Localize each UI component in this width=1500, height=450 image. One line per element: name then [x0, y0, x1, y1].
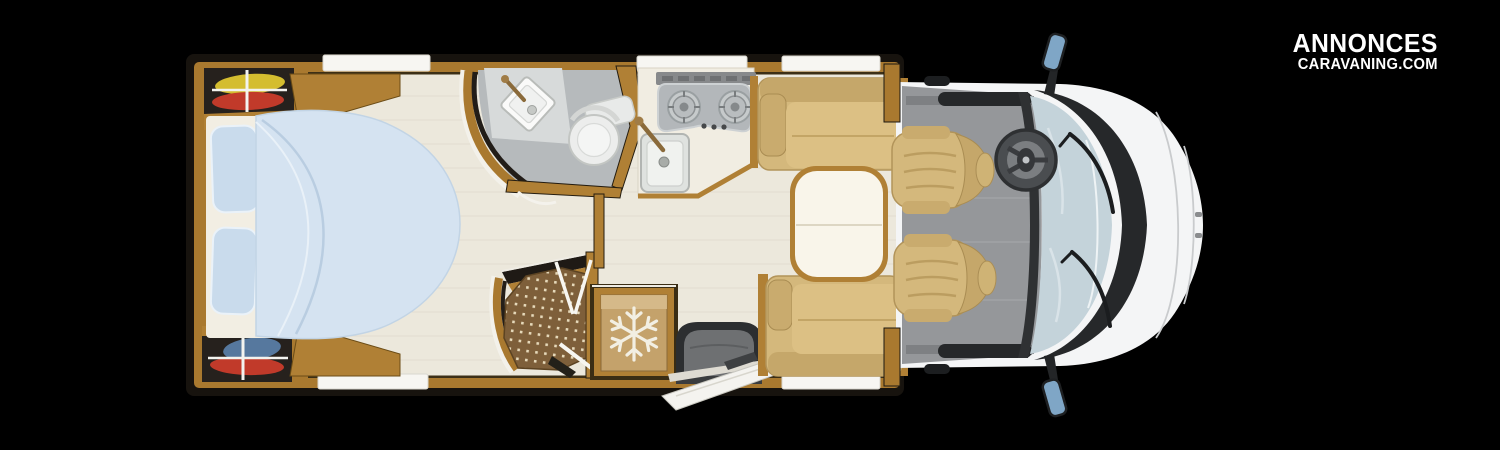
cab-door-sill-top	[938, 92, 1032, 106]
hob-burner-right	[719, 91, 751, 123]
steering-wheel	[996, 130, 1056, 190]
corridor-partition-wall	[594, 194, 604, 268]
pillow-top	[211, 125, 260, 213]
dinette-bench-rear	[766, 276, 904, 376]
pillow-bottom	[211, 227, 258, 314]
fridge	[590, 284, 678, 380]
brand-logo-line1: ANNONCES	[1293, 30, 1438, 56]
hob-burner-left	[668, 91, 700, 123]
dinette-bench-front	[758, 78, 902, 170]
cab-door-sill-bottom	[938, 344, 1032, 358]
brand-logo-line2: CARAVANING.COM	[1293, 57, 1438, 73]
dinette-table	[790, 166, 888, 282]
brand-logo: ANNONCES CARAVANING.COM	[1293, 30, 1438, 73]
floorplan-canvas: ANNONCES CARAVANING.COM	[0, 0, 1500, 450]
motorhome-floorplan	[0, 0, 1500, 450]
